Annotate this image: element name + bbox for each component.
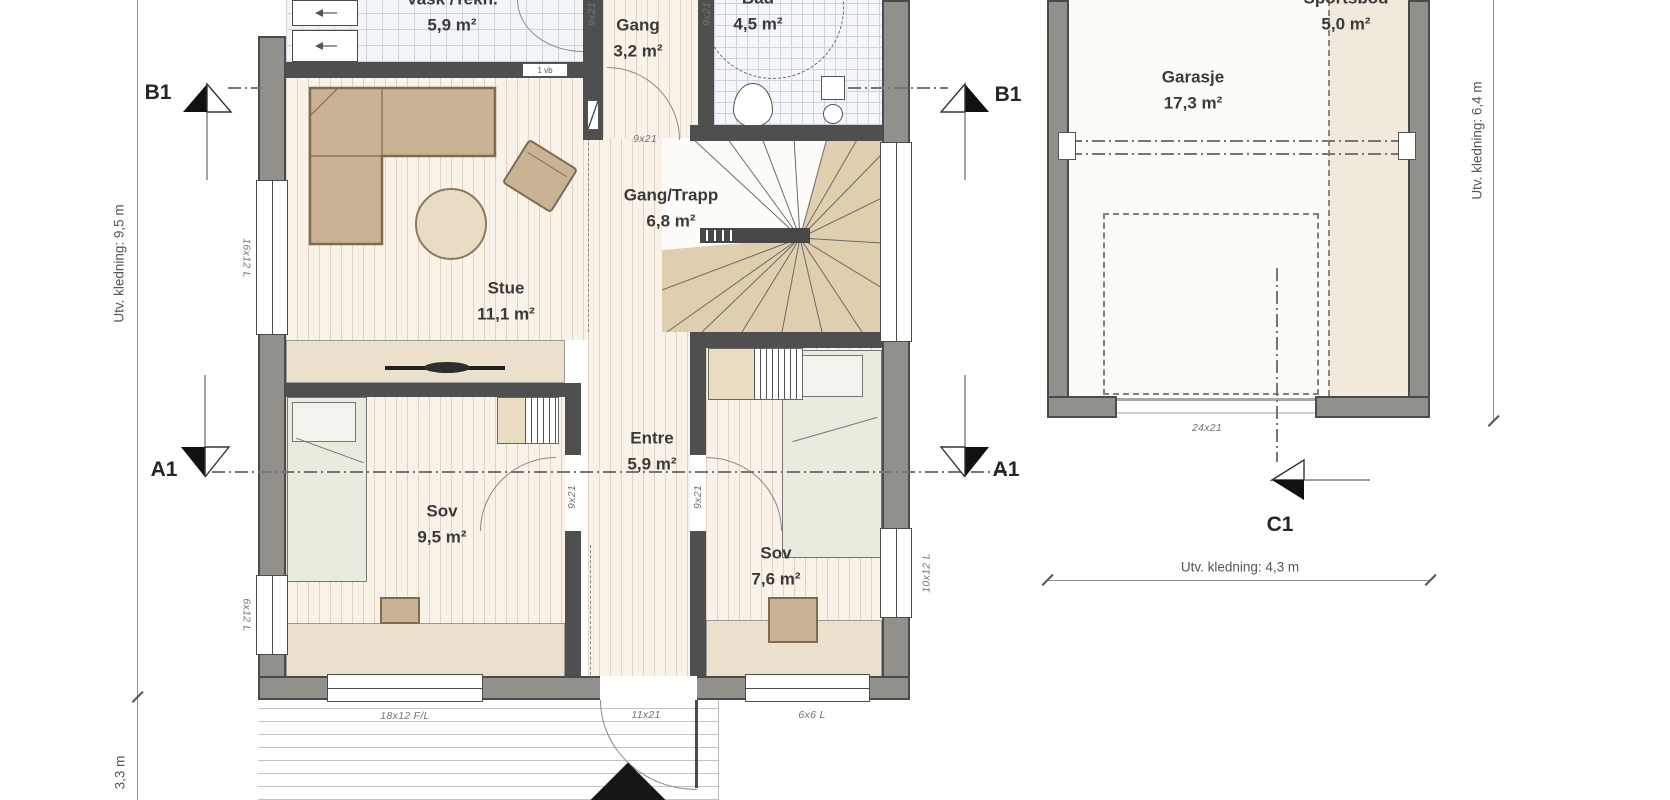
room-area: 6,8 m² xyxy=(646,208,695,234)
floor-plan: 1 vb B1 B1 xyxy=(0,0,1670,800)
section-marker-a1-right xyxy=(938,375,992,477)
garage-apron xyxy=(1117,412,1315,414)
wall xyxy=(690,531,706,676)
dimension-line-left xyxy=(137,0,138,800)
room-label-sportsbod: Sportsbod 5,0 m² xyxy=(1304,0,1389,37)
left-arrow-icon xyxy=(312,41,338,51)
wall xyxy=(565,531,581,676)
wall-note-text: 1 vb xyxy=(537,66,552,75)
stairs xyxy=(662,138,882,332)
room-label-stue: Stue 11,1 m² xyxy=(477,276,535,327)
garage-wall-bottom xyxy=(1047,396,1117,418)
room-area: 3,2 m² xyxy=(613,38,662,64)
section-line-c1 xyxy=(1276,268,1278,462)
room-name: Garasje xyxy=(1162,65,1224,91)
roof-line-end xyxy=(1398,132,1416,160)
room-name: Stue xyxy=(488,276,525,302)
section-marker-a1-left xyxy=(178,375,232,477)
section-marker-c1 xyxy=(1252,455,1372,507)
room-name: Vask /Tekn. xyxy=(406,0,497,12)
floor-entre xyxy=(588,332,690,676)
vent-shaft xyxy=(587,100,599,130)
garage-wall-right xyxy=(1408,0,1430,418)
section-label-a1: A1 xyxy=(993,458,1020,482)
entrance-door-leaf xyxy=(695,700,698,788)
garage-wall-left xyxy=(1047,0,1069,418)
room-area: 9,5 m² xyxy=(417,524,466,550)
wardrobe xyxy=(497,397,559,444)
entrance-opening xyxy=(600,676,697,700)
window-stue xyxy=(256,180,288,335)
room-name: Bad xyxy=(742,0,774,11)
appliance-washer xyxy=(292,0,358,26)
floor-gang-trapp xyxy=(588,138,662,332)
room-name: Gang/Trapp xyxy=(624,183,718,209)
garage-roof-line xyxy=(1069,153,1408,155)
bed-pillow xyxy=(799,355,863,397)
open-boundary-stue xyxy=(588,138,589,332)
dimension-line-garage-bottom xyxy=(1047,580,1430,581)
wall xyxy=(698,332,882,348)
door-label-gang: 9x21 xyxy=(633,133,657,145)
room-name: Sportsbod xyxy=(1304,0,1389,11)
garderobe-outline xyxy=(590,545,591,695)
section-line-a1 xyxy=(212,471,1008,473)
room-label-garasje: Garasje 17,3 m² xyxy=(1162,65,1224,116)
wall xyxy=(690,125,882,141)
room-area: 4,5 m² xyxy=(733,11,782,37)
bed-fold xyxy=(793,417,878,442)
window-label-bottom-right: 6x6 L xyxy=(798,709,825,721)
room-name: Sov xyxy=(426,499,457,525)
wall-note-box: 1 vb xyxy=(522,63,568,77)
room-name: Gang xyxy=(616,13,659,39)
garage-wall-bottom xyxy=(1315,396,1430,418)
dimension-line-garage-right xyxy=(1493,0,1494,422)
bed-pillow xyxy=(292,402,356,442)
toilet xyxy=(733,83,773,125)
window-sov-left xyxy=(256,575,288,655)
tv-soundbar xyxy=(424,362,470,373)
floor-strip-sov-left xyxy=(286,623,565,677)
room-label-vask: Vask /Tekn. 5,9 m² xyxy=(406,0,497,38)
room-area: 17,3 m² xyxy=(1164,90,1223,116)
dimension-label-garage-width: Utv. kledning: 4,3 m xyxy=(1181,560,1299,575)
window-stairwell xyxy=(880,142,912,342)
section-label-c1: C1 xyxy=(1267,513,1294,537)
room-label-sov-left: Sov 9,5 m² xyxy=(417,499,466,550)
bed xyxy=(287,397,367,582)
room-label-gang-trapp: Gang/Trapp 6,8 m² xyxy=(624,183,718,234)
roof-line-end xyxy=(1058,132,1076,160)
wall xyxy=(690,332,706,455)
room-label-sov-right: Sov 7,6 m² xyxy=(751,541,800,592)
appliance-tech-cabinet xyxy=(292,30,358,62)
room-area: 5,0 m² xyxy=(1321,11,1370,37)
room-name: Entre xyxy=(630,426,673,452)
door-label-entrance: 11x21 xyxy=(631,709,660,721)
window-bottom-right xyxy=(745,674,870,702)
tv-bench xyxy=(286,340,565,383)
garage-door-label: 24x21 xyxy=(1192,422,1222,434)
section-label-b1: B1 xyxy=(995,83,1022,107)
room-area: 5,9 m² xyxy=(627,451,676,477)
window-bottom-left xyxy=(327,674,483,702)
garage-roof-line xyxy=(1069,140,1408,142)
room-label-gang: Gang 3,2 m² xyxy=(613,13,662,64)
window-label-bottom-left: 18x12 F/L xyxy=(380,710,429,722)
section-line-b1 xyxy=(848,87,948,89)
room-area: 11,1 m² xyxy=(477,301,535,327)
room-name: Sov xyxy=(760,541,791,567)
room-label-bad: Bad 4,5 m² xyxy=(733,0,782,37)
left-arrow-icon xyxy=(312,8,338,18)
section-label-a1: A1 xyxy=(151,458,178,482)
room-area: 5,9 m² xyxy=(427,12,476,38)
wall xyxy=(565,383,581,455)
dresser xyxy=(768,597,818,643)
floor-sportsbod xyxy=(1328,0,1408,396)
room-label-entre: Entre 5,9 m² xyxy=(627,426,676,477)
section-label-b1: B1 xyxy=(145,81,172,105)
deck-edge xyxy=(718,700,719,800)
window-sov-right xyxy=(880,528,912,618)
garage-door-threshold xyxy=(1117,398,1315,401)
room-area: 7,6 m² xyxy=(751,566,800,592)
section-marker-b1-right xyxy=(938,82,992,182)
wall xyxy=(286,383,581,397)
sink xyxy=(821,76,845,100)
section-marker-b1-left xyxy=(180,82,234,182)
dresser xyxy=(380,597,420,624)
car-space-outline xyxy=(1103,213,1319,395)
shower-drain xyxy=(823,104,843,124)
wardrobe xyxy=(708,348,803,400)
coffee-table xyxy=(415,188,487,260)
